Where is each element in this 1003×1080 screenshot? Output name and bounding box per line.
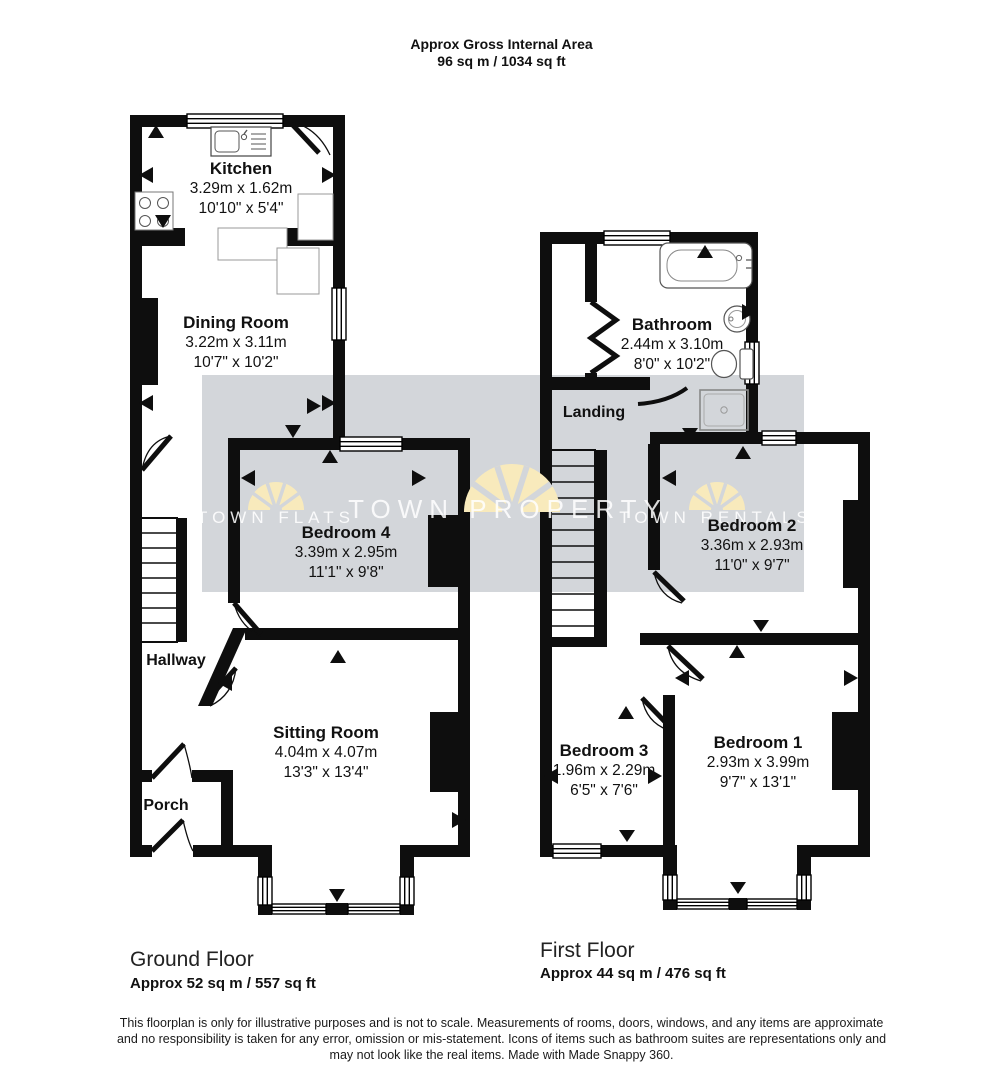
wardrobe-bedroom1	[832, 712, 858, 790]
room-label-kitchen: Kitchen 3.29m x 1.62m 10'10" x 5'4"	[190, 158, 293, 219]
stairs-icon	[140, 518, 177, 642]
door-icon	[152, 744, 192, 778]
window-icon	[272, 904, 326, 914]
room-dim-metric: 2.44m x 3.10m	[621, 335, 724, 355]
room-name: Bathroom	[621, 314, 724, 335]
room-label-bedroom1: Bedroom 1 2.93m x 3.99m 9'7" x 13'1"	[707, 732, 810, 793]
floorplan-page: Approx Gross Internal Area 96 sq m / 103…	[0, 0, 1003, 1080]
room-dim-imperial: 8'0" x 10'2"	[621, 355, 724, 375]
window-icon	[187, 114, 283, 128]
sink-icon	[211, 127, 271, 156]
window-icon	[400, 877, 414, 905]
window-icon	[663, 875, 677, 900]
window-icon	[332, 288, 346, 340]
first-floor-area: Approx 44 sq m / 476 sq ft	[540, 965, 726, 982]
door-icon	[152, 820, 193, 851]
room-name: Bedroom 3	[553, 740, 656, 761]
room-dim-imperial: 11'0" x 9'7"	[701, 556, 804, 576]
room-dim-imperial: 10'10" x 5'4"	[190, 199, 293, 219]
room-dim-imperial: 11'1" x 9'8"	[295, 563, 398, 583]
header-line2: 96 sq m / 1034 sq ft	[0, 53, 1003, 70]
bifold-door-icon	[591, 302, 616, 373]
room-name: Dining Room	[183, 312, 289, 333]
ground-floor-label: Ground Floor	[130, 948, 254, 972]
room-name: Hallway	[146, 650, 206, 671]
window-icon	[797, 875, 811, 900]
room-label-porch: Porch	[143, 795, 188, 816]
room-name: Sitting Room	[273, 722, 379, 743]
room-name: Kitchen	[190, 158, 293, 179]
room-dim-metric: 3.36m x 2.93m	[701, 536, 804, 556]
ground-floor-area: Approx 52 sq m / 557 sq ft	[130, 975, 316, 992]
first-floor-label: First Floor	[540, 939, 635, 963]
window-icon	[553, 844, 601, 858]
window-icon	[604, 231, 670, 245]
room-dim-metric: 1.96m x 2.29m	[553, 761, 656, 781]
window-icon	[348, 904, 400, 914]
header-line1: Approx Gross Internal Area	[0, 36, 1003, 53]
room-label-bedroom2: Bedroom 2 3.36m x 2.93m 11'0" x 9'7"	[701, 515, 804, 576]
room-dim-metric: 3.29m x 1.62m	[190, 179, 293, 199]
hob-icon	[135, 192, 173, 230]
window-icon	[340, 437, 402, 451]
room-name: Bedroom 4	[295, 522, 398, 543]
room-dim-imperial: 10'7" x 10'2"	[183, 353, 289, 373]
room-dim-imperial: 6'5" x 7'6"	[553, 781, 656, 801]
room-dim-metric: 3.22m x 3.11m	[183, 333, 289, 353]
window-icon	[747, 899, 797, 909]
room-label-bedroom3: Bedroom 3 1.96m x 2.29m 6'5" x 7'6"	[553, 740, 656, 801]
gross-internal-area-header: Approx Gross Internal Area 96 sq m / 103…	[0, 36, 1003, 70]
disclaimer-line3: may not look like the real items. Made w…	[0, 1047, 1003, 1063]
disclaimer-line2: and no responsibility is taken for any e…	[0, 1031, 1003, 1047]
wardrobe-bedroom2	[843, 500, 858, 588]
room-dim-metric: 4.04m x 4.07m	[273, 743, 379, 763]
room-name: Landing	[563, 402, 625, 423]
disclaimer-line1: This floorplan is only for illustrative …	[0, 1015, 1003, 1031]
room-label-sitting-room: Sitting Room 4.04m x 4.07m 13'3" x 13'4"	[273, 722, 379, 783]
room-dim-metric: 2.93m x 3.99m	[707, 753, 810, 773]
window-icon	[258, 877, 272, 905]
chimney-sitting-room	[430, 712, 458, 792]
room-label-dining-room: Dining Room 3.22m x 3.11m 10'7" x 10'2"	[183, 312, 289, 373]
room-name: Bedroom 1	[707, 732, 810, 753]
floorplan-drawing	[0, 0, 1003, 1080]
room-dim-imperial: 13'3" x 13'4"	[273, 763, 379, 783]
window-icon	[677, 899, 729, 909]
room-name: Porch	[143, 795, 188, 816]
room-label-bathroom: Bathroom 2.44m x 3.10m 8'0" x 10'2"	[621, 314, 724, 375]
room-label-bedroom4: Bedroom 4 3.39m x 2.95m 11'1" x 9'8"	[295, 522, 398, 583]
room-dim-imperial: 9'7" x 13'1"	[707, 773, 810, 793]
disclaimer-text: This floorplan is only for illustrative …	[0, 1015, 1003, 1063]
wardrobe-bedroom4	[428, 515, 458, 587]
door-icon	[142, 436, 171, 470]
room-name: Bedroom 2	[701, 515, 804, 536]
room-dim-metric: 3.39m x 2.95m	[295, 543, 398, 563]
room-label-landing: Landing	[563, 402, 625, 423]
window-icon	[762, 431, 796, 445]
room-label-hallway: Hallway	[146, 650, 206, 671]
